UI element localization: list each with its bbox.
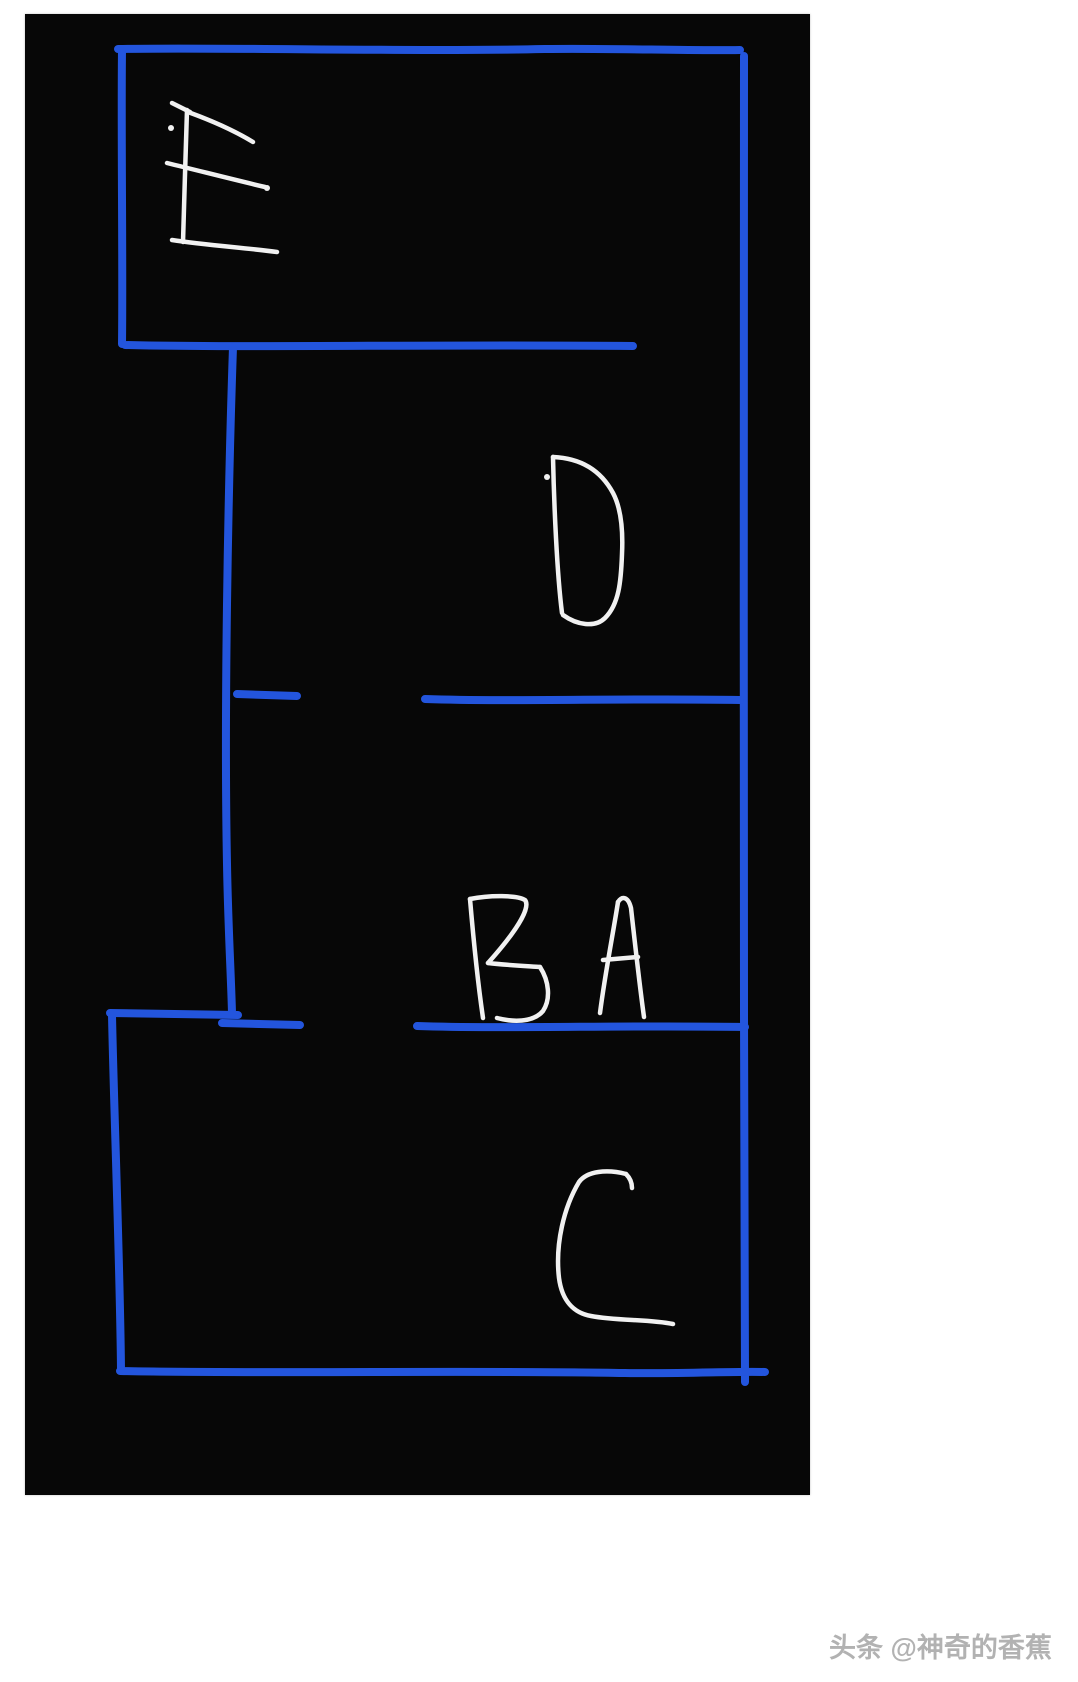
room-label-E-stroke-1 bbox=[183, 110, 187, 242]
room-label-B-stroke-2 bbox=[488, 963, 540, 967]
d-dot bbox=[544, 474, 550, 480]
room-label-D-stroke-0 bbox=[553, 457, 562, 613]
room-label-E-stroke-2 bbox=[188, 112, 253, 142]
bottom-room-top-wall-right bbox=[417, 1026, 745, 1027]
middle-wall-left-segment bbox=[237, 694, 297, 696]
watermark: 头条 @神奇的香蕉 bbox=[829, 1626, 1052, 1665]
bottom-room-left-wall bbox=[112, 1015, 121, 1370]
room-label-B-stroke-0 bbox=[470, 899, 483, 1018]
outer-top-wall bbox=[118, 49, 740, 51]
middle-wall-right-segment bbox=[425, 699, 740, 700]
sketch-canvas bbox=[25, 14, 810, 1495]
outer-bottom-wall bbox=[120, 1371, 765, 1373]
e-room-bottom-wall bbox=[125, 345, 633, 346]
bottom-room-top-wall-left2 bbox=[222, 1023, 300, 1025]
room-label-B-stroke-3 bbox=[497, 967, 548, 1021]
outer-right-wall bbox=[743, 56, 745, 1382]
room-label-C-stroke-0 bbox=[626, 1174, 632, 1188]
e-room-left-wall bbox=[122, 51, 123, 344]
room-label-E-stroke-3 bbox=[167, 163, 265, 187]
middle-vertical-wall bbox=[226, 347, 233, 1013]
room-label-C-stroke-1 bbox=[558, 1171, 673, 1324]
page: 头条 @神奇的香蕉 bbox=[0, 0, 1078, 1682]
e-dot bbox=[168, 125, 174, 131]
room-label-D-stroke-1 bbox=[553, 457, 622, 624]
room-label-E-stroke-4 bbox=[172, 240, 277, 252]
room-label-B-stroke-1 bbox=[470, 896, 526, 963]
bottom-room-top-wall-left bbox=[110, 1013, 238, 1015]
room-label-A-stroke-2 bbox=[603, 957, 638, 960]
e-mid-arm-dot bbox=[264, 185, 270, 191]
floor-plan-svg bbox=[25, 14, 810, 1495]
